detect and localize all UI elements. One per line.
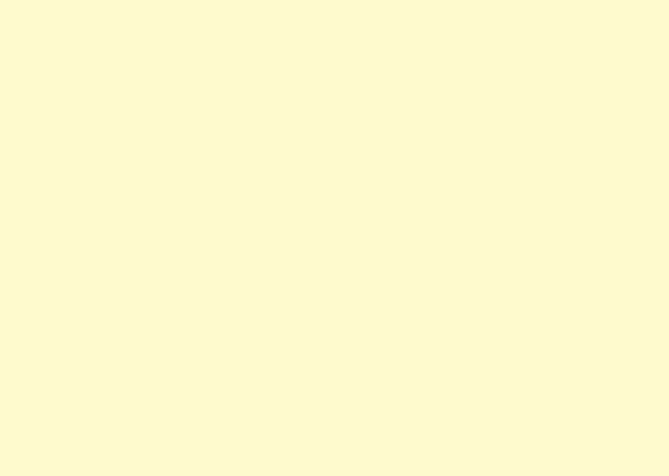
blank-background-canvas [0, 0, 669, 476]
